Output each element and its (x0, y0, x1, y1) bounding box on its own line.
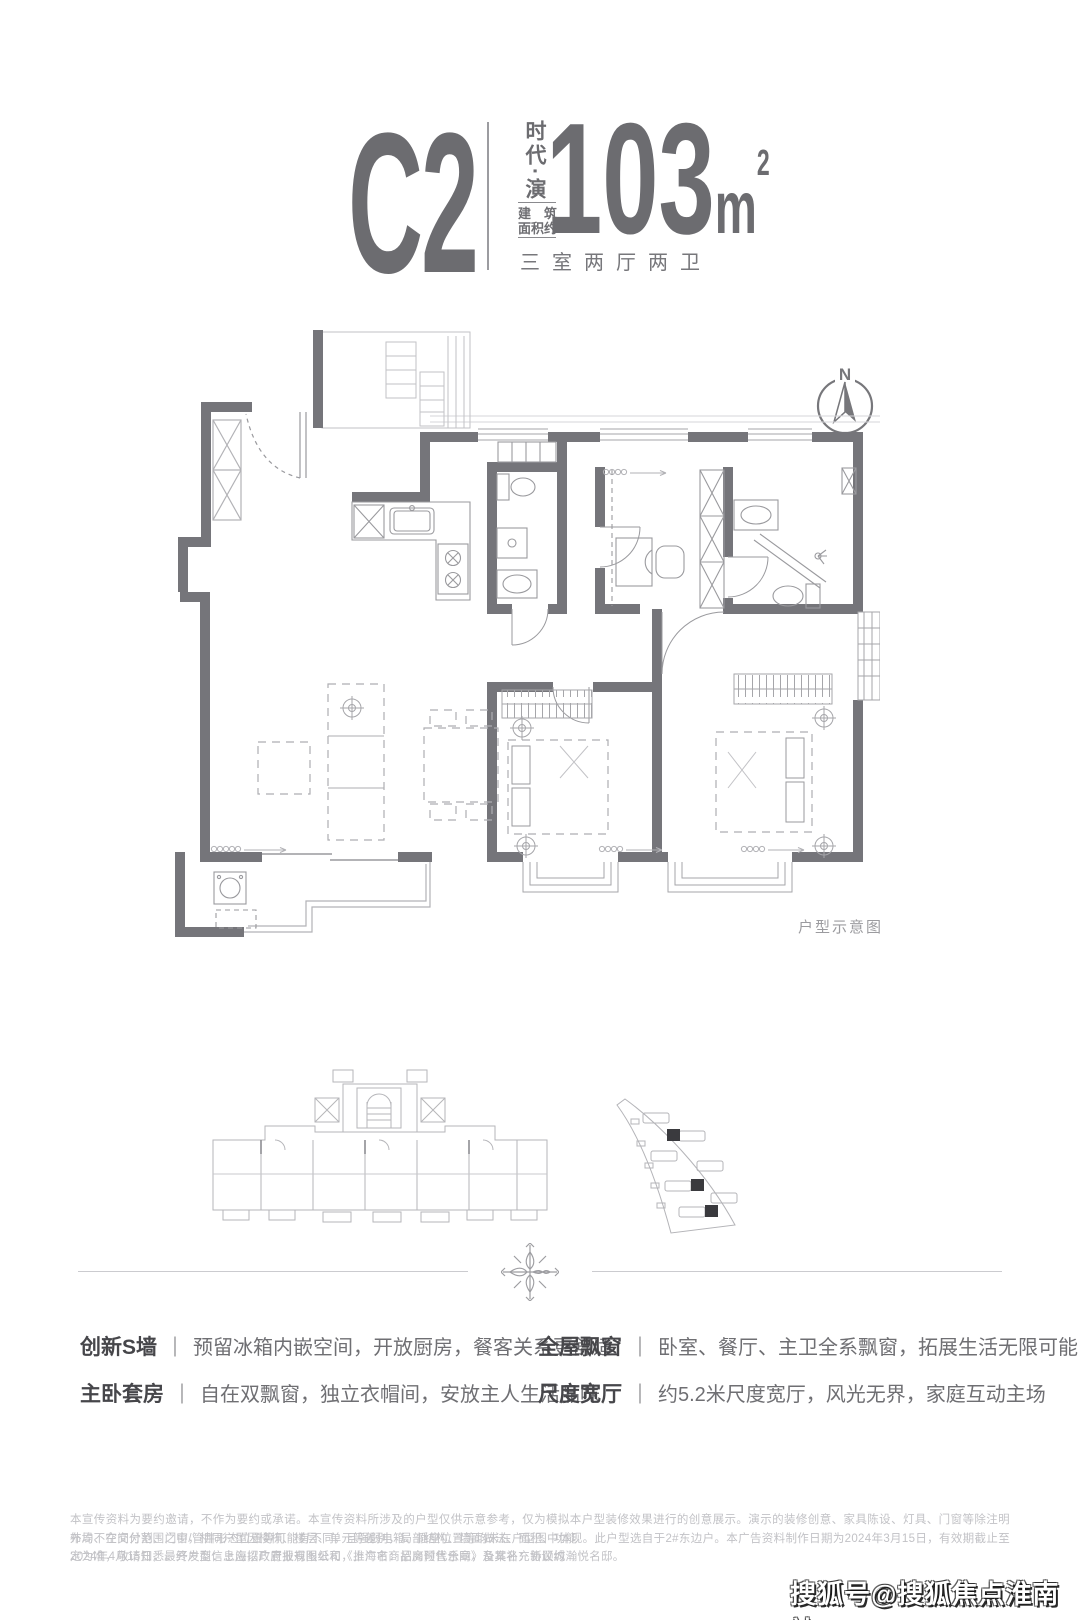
logo-ornament-icon (501, 1243, 559, 1301)
curtain-symbols (211, 469, 804, 852)
living-dining (258, 684, 498, 840)
master-bathroom (728, 468, 856, 608)
feature-label: 主卧套房 (80, 1381, 164, 1409)
windows-top (478, 429, 812, 440)
feature-label: 创新S墙 (80, 1334, 157, 1362)
entry-area (213, 412, 306, 520)
master-bedroom (716, 674, 836, 858)
series-name: 时代·演 (519, 120, 549, 210)
header-divider-line (487, 122, 489, 270)
keyplan-drawing (205, 1062, 555, 1232)
feature-row-4: 尺度宽厅 ｜ 约5.2米尺度宽厅，风光无界，家庭互动主场 (538, 1381, 1046, 1409)
floorplan-caption: 户型示意图 (798, 916, 883, 937)
feature-divider: ｜ (165, 1334, 185, 1362)
disclaimer-line-3: 定为准，敬请知悉。开发商：上海招广置业有限公司，推广名：招商时代乐章，备案名：新… (70, 1548, 1010, 1567)
feature-text: 约5.2米尺度宽厅，风光无界，家庭互动主场 (658, 1381, 1046, 1409)
watermark: 搜狐号@搜狐焦点淮南站 (790, 1574, 1080, 1620)
floorplan-drawing (120, 300, 880, 950)
feature-divider: ｜ (630, 1334, 650, 1362)
feature-label: 全屋飘窗 (538, 1334, 622, 1362)
balcony (214, 872, 256, 928)
area-value: 103 (546, 91, 715, 267)
area-figure: 103m2 (546, 100, 770, 258)
highlighted-units (667, 1129, 718, 1217)
rooms-summary: 三室两厅两卫 (520, 246, 712, 275)
feature-divider: ｜ (172, 1381, 192, 1409)
feature-row-3: 全屋飘窗 ｜ 卧室、餐厅、主卫全系飘窗，拓展生活无限可能 (538, 1334, 1078, 1362)
bay-window-right (858, 612, 880, 700)
bay-window-bedroom2 (523, 862, 618, 892)
area-unit: m (715, 166, 757, 249)
guest-bathroom (497, 442, 556, 645)
feature-text: 卧室、餐厅、主卫全系飘窗，拓展生活无限可能 (658, 1334, 1078, 1362)
bedroom-2 (502, 690, 608, 858)
floorplan-poster: C2 时代·演 建 筑 面积约 103m2 三室两厅两卫 N (0, 0, 1080, 1620)
feature-label: 尺度宽厅 (538, 1381, 622, 1409)
stair-lobby (322, 332, 470, 428)
unit-code: C2 (348, 104, 477, 304)
balcony-edge (244, 862, 430, 932)
divider-line-right (592, 1271, 1002, 1272)
siteplan-drawing (595, 1055, 760, 1235)
slab-lines (430, 416, 880, 422)
area-exponent: 2 (757, 142, 770, 183)
bay-window-master (668, 862, 792, 892)
feature-row-1: 创新S墙 ｜ 预留冰箱内嵌空间，开放厨房，餐客关系更舒适 (80, 1334, 613, 1362)
walkin-closet (600, 470, 724, 608)
feature-divider: ｜ (630, 1381, 650, 1409)
feature-row-2: 主卧套房 ｜ 自在双飘窗，独立衣帽间，安放主人生活品味 (80, 1381, 600, 1409)
divider-line-left (78, 1271, 468, 1272)
kitchen (352, 502, 470, 600)
living-slider-door (262, 854, 398, 860)
